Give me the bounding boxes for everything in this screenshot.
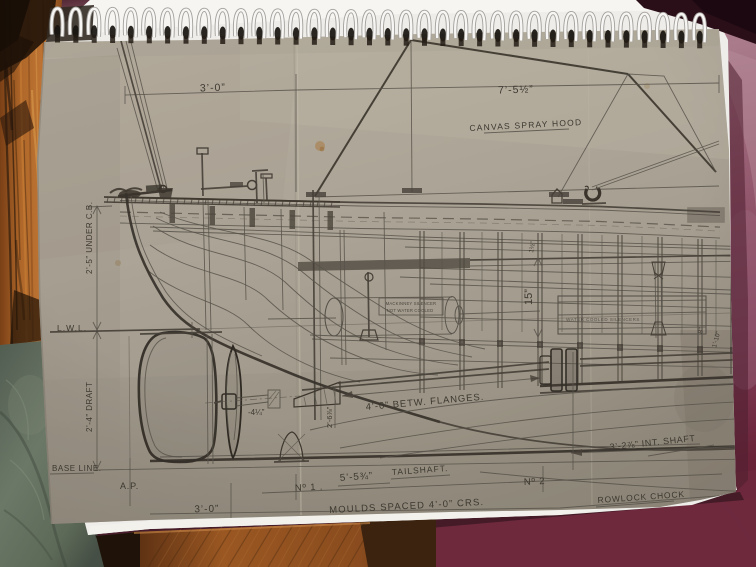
svg-text:2’-6⅞”: 2’-6⅞”	[325, 406, 334, 428]
svg-text:Nº 1 .: Nº 1 .	[295, 482, 324, 494]
svg-text:15”: 15”	[523, 289, 535, 305]
svg-text:MACKINNEY SILENCER: MACKINNEY SILENCER	[386, 301, 437, 306]
svg-text:Nº 2: Nº 2	[524, 476, 546, 488]
svg-text:2’-5” UNDER C.B.: 2’-5” UNDER C.B.	[85, 202, 94, 274]
svg-text:2’-4” DRAFT: 2’-4” DRAFT	[85, 382, 94, 432]
svg-text:3’-0”: 3’-0”	[200, 82, 226, 95]
svg-text:7’-5½”: 7’-5½”	[498, 83, 534, 96]
svg-text:L.W.L.: L.W.L.	[57, 323, 87, 333]
svg-text:5’-5¾”: 5’-5¾”	[339, 471, 373, 484]
svg-text:A.P.: A.P.	[120, 481, 139, 491]
svg-text:NOT WATER COOLED: NOT WATER COOLED	[387, 308, 434, 313]
svg-text:3’-0”: 3’-0”	[194, 504, 219, 516]
svg-text:-4¼”: -4¼”	[248, 408, 265, 417]
svg-text:BASE LINE.: BASE LINE.	[52, 464, 102, 473]
